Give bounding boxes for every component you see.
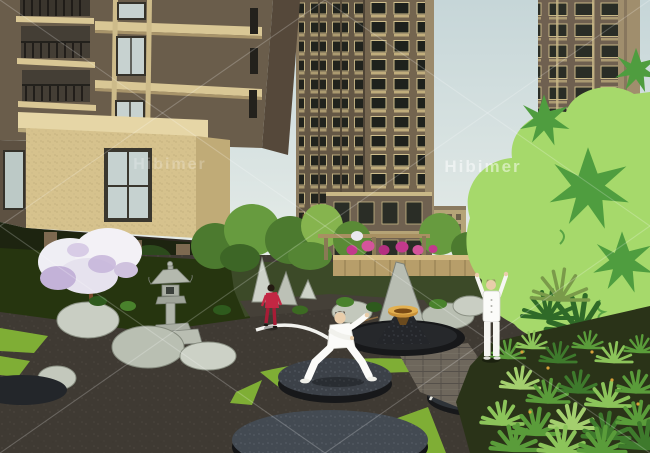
watermark-text-building: Hibimer [133,156,207,173]
scene-svg: Hibimer Hibimer [0,0,650,453]
rendering-canvas: Hibimer Hibimer [0,0,650,453]
watermark-text-sky: Hibimer [444,157,521,176]
